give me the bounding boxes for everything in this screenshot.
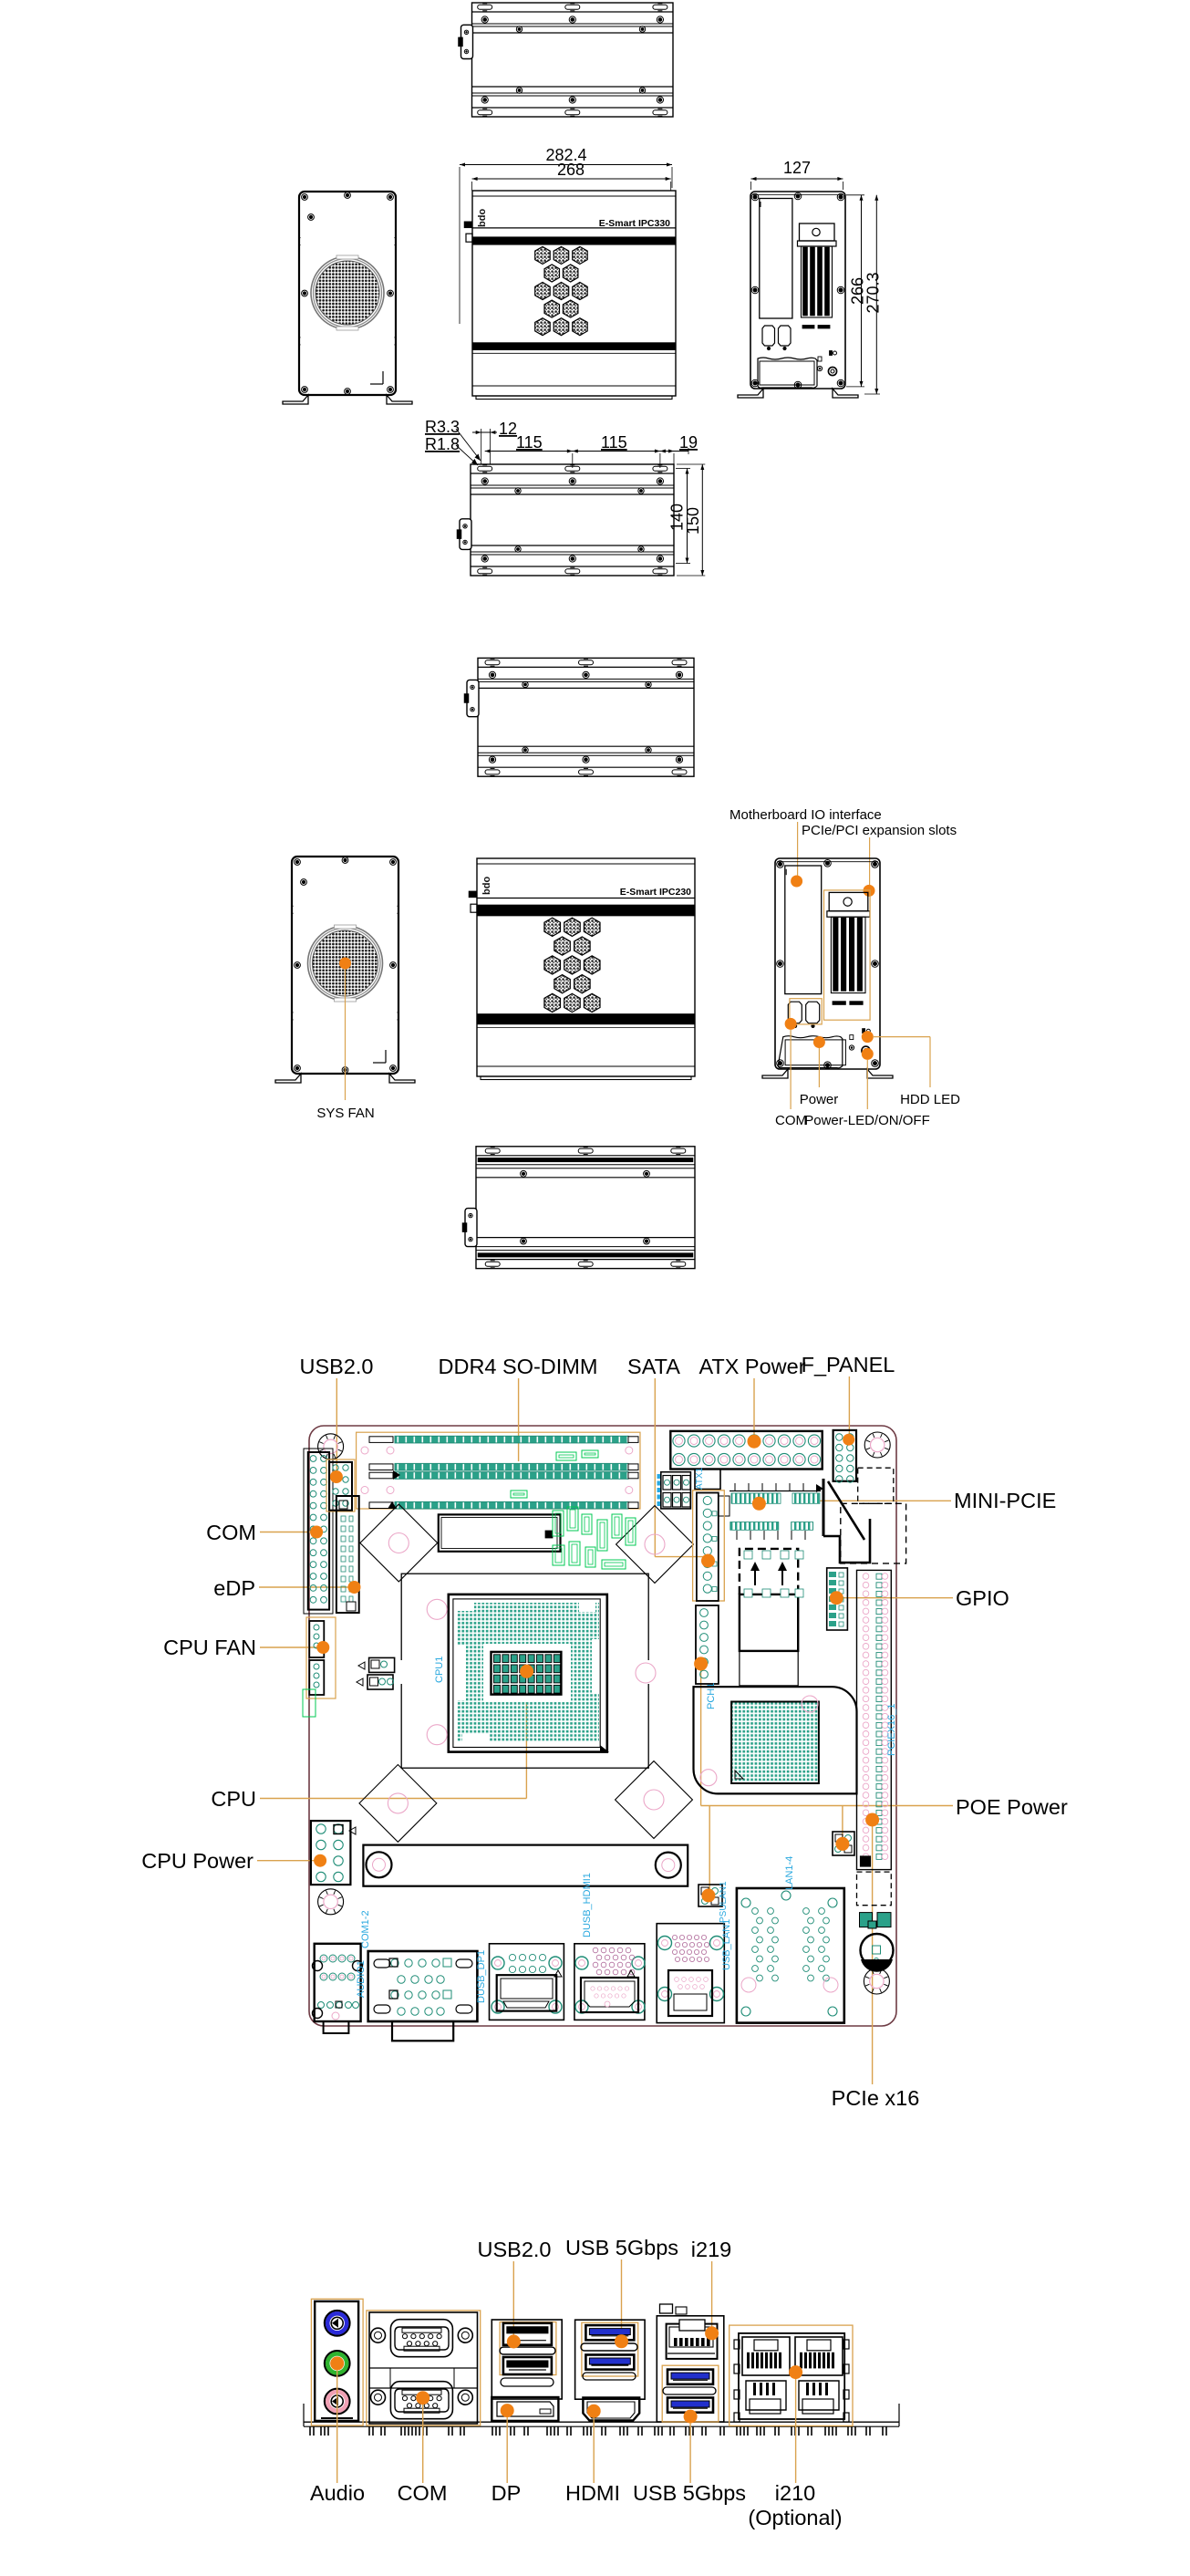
svg-text:Power: Power bbox=[800, 1092, 839, 1107]
svg-text:ATX1: ATX1 bbox=[695, 1467, 705, 1490]
svg-text:DUSB_DP1: DUSB_DP1 bbox=[476, 1950, 487, 2003]
svg-text:USB2.0: USB2.0 bbox=[478, 2238, 552, 2261]
svg-text:CPU: CPU bbox=[211, 1787, 256, 1811]
svg-text:DDR4 SO-DIMM: DDR4 SO-DIMM bbox=[439, 1355, 598, 1378]
svg-text:F_PANEL: F_PANEL bbox=[802, 1353, 895, 1376]
svg-text:PCIe/PCI expansion slots: PCIe/PCI expansion slots bbox=[802, 823, 957, 838]
svg-text:127: 127 bbox=[783, 159, 811, 177]
svg-text:GPIO: GPIO bbox=[956, 1586, 1009, 1610]
svg-text:MINI-PCIE: MINI-PCIE bbox=[954, 1489, 1056, 1512]
svg-text:DUSB_HDMI1: DUSB_HDMI1 bbox=[582, 1873, 593, 1937]
svg-text:eDP: eDP bbox=[213, 1576, 255, 1600]
svg-text:COM: COM bbox=[398, 2481, 448, 2505]
svg-text:R3.3: R3.3 bbox=[425, 418, 460, 436]
svg-text:AUDIO1: AUDIO1 bbox=[356, 1960, 367, 1998]
svg-text:150: 150 bbox=[684, 507, 702, 535]
svg-text:PCIEX16_1: PCIEX16_1 bbox=[886, 1704, 897, 1756]
svg-text:USB_LAN1: USB_LAN1 bbox=[721, 1919, 732, 1970]
svg-text:USB 5Gbps: USB 5Gbps bbox=[633, 2481, 746, 2505]
svg-text:COM: COM bbox=[206, 1521, 256, 1544]
svg-text:HDMI: HDMI bbox=[565, 2481, 620, 2505]
svg-text:COM: COM bbox=[775, 1113, 807, 1128]
svg-text:USB2.0: USB2.0 bbox=[300, 1355, 374, 1378]
svg-text:i210: i210 bbox=[775, 2481, 815, 2505]
svg-text:SYS FAN: SYS FAN bbox=[316, 1106, 374, 1121]
svg-text:270.3: 270.3 bbox=[864, 272, 883, 313]
svg-text:HDD LED: HDD LED bbox=[900, 1092, 960, 1107]
svg-text:bdo: bdo bbox=[477, 209, 488, 227]
svg-text:LAN1-4: LAN1-4 bbox=[784, 1856, 795, 1890]
svg-text:CPU Power: CPU Power bbox=[141, 1849, 254, 1873]
svg-text:115: 115 bbox=[516, 433, 543, 452]
svg-text:Motherboard IO interface: Motherboard IO interface bbox=[730, 807, 882, 823]
svg-text:E-Smart IPC330: E-Smart IPC330 bbox=[599, 218, 670, 229]
svg-text:115: 115 bbox=[601, 433, 627, 452]
svg-text:i219: i219 bbox=[691, 2238, 731, 2261]
svg-text:(Optional): (Optional) bbox=[748, 2506, 842, 2529]
svg-text:bdo: bdo bbox=[481, 877, 492, 895]
svg-text:CPU1: CPU1 bbox=[434, 1657, 445, 1683]
svg-text:R1.8: R1.8 bbox=[425, 435, 460, 453]
svg-text:POE Power: POE Power bbox=[956, 1795, 1068, 1819]
svg-text:E-Smart IPC230: E-Smart IPC230 bbox=[620, 887, 691, 898]
svg-text:268: 268 bbox=[557, 161, 585, 179]
svg-text:PSULAN1: PSULAN1 bbox=[719, 1881, 729, 1923]
svg-text:COM1-2: COM1-2 bbox=[360, 1910, 371, 1948]
svg-text:12: 12 bbox=[499, 420, 517, 438]
svg-text:PCIe x16: PCIe x16 bbox=[832, 2086, 920, 2110]
svg-text:CPU FAN: CPU FAN bbox=[163, 1636, 256, 1659]
svg-text:ATX Power: ATX Power bbox=[698, 1355, 805, 1378]
svg-text:USB 5Gbps: USB 5Gbps bbox=[565, 2236, 678, 2259]
svg-text:Power-LED/ON/OFF: Power-LED/ON/OFF bbox=[804, 1113, 930, 1128]
svg-text:DP: DP bbox=[492, 2481, 522, 2505]
svg-text:Audio: Audio bbox=[310, 2481, 365, 2505]
svg-text:SATA: SATA bbox=[627, 1355, 680, 1378]
